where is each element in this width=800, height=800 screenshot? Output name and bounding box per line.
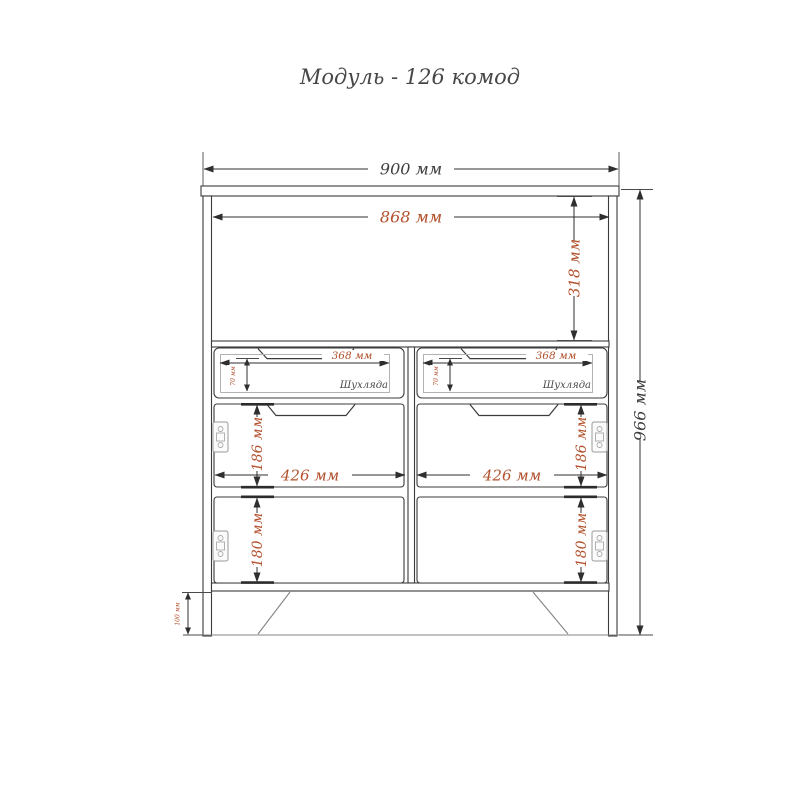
middle-shelf xyxy=(212,341,610,347)
dim-text-180-right: 180 мм xyxy=(574,513,590,567)
dim-text-368-right: 368 мм xyxy=(536,350,577,362)
technical-drawing: Модуль - 126 комод 900 мм 868 мм 318 мм … xyxy=(0,0,800,800)
drawer-left-label: Шухляда xyxy=(339,380,388,391)
dim-text-318: 318 мм xyxy=(565,239,583,297)
dim-text-plinth: 100 мм xyxy=(175,602,182,625)
dim-text-70-left: 70 мм xyxy=(230,366,237,386)
bottom-board xyxy=(212,583,610,591)
dim-text-426-right: 426 мм xyxy=(482,467,541,485)
right-side-panel xyxy=(609,196,618,636)
hinge-icon xyxy=(213,531,228,561)
hinge-icon xyxy=(213,422,228,452)
hinge-icon xyxy=(592,531,607,561)
drawing-title: Модуль - 126 комод xyxy=(299,65,520,89)
dim-text-900: 900 мм xyxy=(380,160,442,179)
dim-text-186-left: 186 мм xyxy=(250,417,266,471)
dim-text-426-left: 426 мм xyxy=(280,467,339,485)
door-lower-left xyxy=(214,497,404,583)
dim-text-868: 868 мм xyxy=(380,208,442,227)
left-leg-diagonal xyxy=(258,592,290,634)
dim-text-966: 966 мм xyxy=(631,379,650,441)
drawing-page: Модуль - 126 комод 900 мм 868 мм 318 мм … xyxy=(0,0,800,800)
right-leg-diagonal xyxy=(533,592,568,634)
dim-text-186-right: 186 мм xyxy=(574,417,590,471)
dim-text-180-left: 180 мм xyxy=(250,513,266,567)
hinge-icon xyxy=(592,422,607,452)
top-board xyxy=(201,186,619,196)
center-divider xyxy=(408,347,415,583)
drawer-right-label: Шухляда xyxy=(542,380,591,391)
dim-text-70-right: 70 мм xyxy=(433,366,440,386)
dim-text-368-left: 368 мм xyxy=(332,350,373,362)
left-side-panel xyxy=(203,196,212,636)
